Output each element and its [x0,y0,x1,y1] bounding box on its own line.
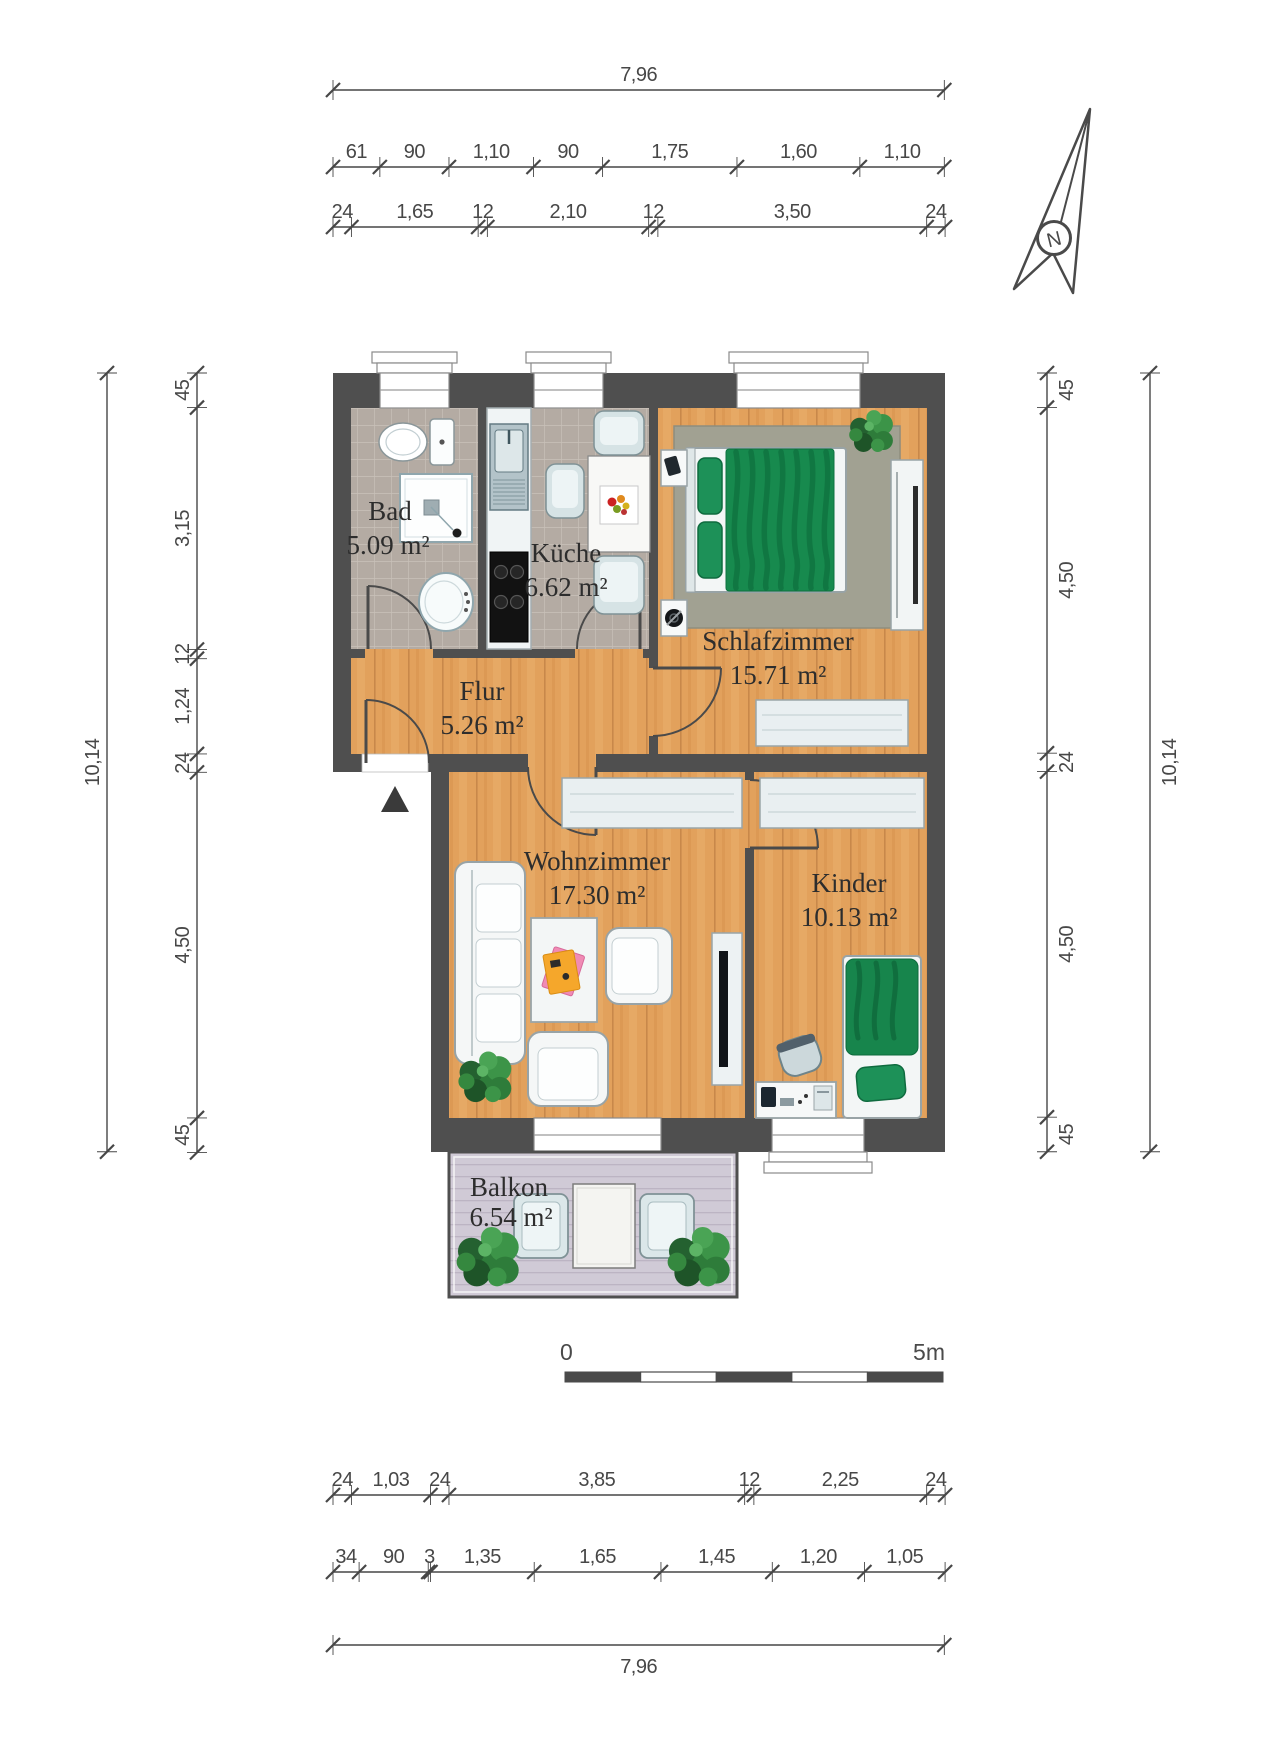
scale-start-label: 0 [560,1339,573,1365]
dim-label: 7,96 [620,64,657,86]
sideboard [562,778,742,828]
dim-label: 24 [925,201,947,223]
cooktop [490,552,528,642]
entrance-arrow-icon [381,786,409,812]
dim-label: 1,60 [780,141,817,163]
double-bed [686,448,846,592]
apartment [333,352,945,1173]
dim-label: 24 [332,1469,354,1491]
room-area-kinder: 10.13 m² [801,902,898,932]
dim-label: 1,05 [886,1546,923,1568]
dim-label: 45 [172,1124,194,1146]
dim-label: 1,10 [473,141,510,163]
dim-label: 34 [335,1546,357,1568]
scale-bar: 0 5m [560,1339,945,1382]
dim-label: 4,50 [172,926,194,963]
room-area-bad: 5.09 m² [346,530,429,560]
scale-end-label: 5m [913,1339,945,1365]
dim-label: 4,50 [1056,926,1078,963]
dim-label: 90 [383,1546,405,1568]
dim-label: 3,85 [578,1469,615,1491]
room-label-kinder: Kinder [812,868,887,898]
dim-label: 12 [172,643,194,665]
dim-label: 12 [472,201,494,223]
dim-chain-left-rooms: 453,15121,24244,5045 [172,366,207,1160]
dim-label: 90 [404,141,426,163]
dim-label: 24 [332,201,354,223]
dim-chain-left-overall: 10,14 [82,366,117,1159]
dim-label: 24 [172,752,194,774]
room-label-schlafzimmer: Schlafzimmer [702,626,853,656]
dim-label: 45 [1056,379,1078,401]
dim-label: 1,10 [884,141,921,163]
tv-board [712,933,742,1085]
balcony-table [573,1184,635,1268]
room-area-wohnzimmer: 17.30 m² [549,880,646,910]
dim-chain-top-overall: 7,96 [326,64,951,100]
desk [756,1082,836,1118]
nightstand [661,450,687,486]
dim-label: 1,03 [373,1469,410,1491]
nightstand [661,600,687,636]
dim-label: 24 [429,1469,451,1491]
dim-chain-bottom-walls: 241,03243,85122,2524 [326,1469,952,1505]
room-area-schlafzimmer: 15.71 m² [730,660,827,690]
kids-bed [843,956,921,1118]
kitchen-sink [490,424,528,510]
dim-label: 45 [172,379,194,401]
dim-label: 10,14 [82,738,104,786]
dim-label: 3,50 [774,201,811,223]
dim-label: 1,75 [651,141,688,163]
dim-label: 4,50 [1056,562,1078,599]
coffee-table [531,918,597,1022]
dim-label: 1,65 [396,201,433,223]
dim-label: 12 [643,201,665,223]
dim-label: 61 [346,141,368,163]
dim-label: 24 [925,1469,947,1491]
sofa [455,862,525,1064]
dim-label: 1,24 [172,687,194,724]
dim-label: 1,65 [579,1546,616,1568]
dim-chain-right-overall: 10,14 [1140,366,1181,1159]
dim-label: 90 [557,141,579,163]
room-area-balkon: 6.54 m² [469,1202,552,1232]
dim-chain-top-walls: 241,65122,10123,5024 [326,201,952,237]
room-area-kueche: 6.62 m² [524,572,607,602]
toilet [379,419,454,465]
dim-chain-bottom-overall: 7,96 [326,1635,951,1678]
dim-label: 3,15 [172,510,194,547]
room-label-flur: Flur [459,676,504,706]
wardrobe [891,460,923,630]
dim-label: 45 [1056,1123,1078,1145]
dim-chain-bottom-openings: 349031,351,651,451,201,05 [326,1546,952,1582]
dim-chain-right-rooms: 454,50244,5045 [1037,366,1078,1159]
bathroom-sink [419,573,473,631]
dim-label: 24 [1056,751,1078,773]
armchair [528,1032,608,1106]
room-label-bad: Bad [368,496,412,526]
dim-chain-top-openings: 61901,10901,751,601,10 [326,141,951,177]
dim-label: 3 [424,1546,435,1568]
dim-label: 2,25 [822,1469,859,1491]
dim-label: 10,14 [1159,738,1181,786]
armchair [606,928,672,1004]
dim-label: 1,35 [464,1546,501,1568]
sideboard [756,700,908,746]
dim-label: 7,96 [620,1656,657,1678]
dim-label: 2,10 [550,201,587,223]
room-label-wohnzimmer: Wohnzimmer [524,846,670,876]
dim-label: 1,20 [800,1546,837,1568]
room-label-balkon: Balkon [470,1172,548,1202]
entrance-opening [362,754,428,772]
sideboard [760,778,924,828]
room-label-kueche: Küche [531,538,601,568]
floor-plan: 7,9661901,10901,751,601,10241,65122,1012… [0,0,1280,1737]
north-arrow: N [1014,109,1090,293]
dim-label: 12 [739,1469,761,1491]
room-area-flur: 5.26 m² [440,710,523,740]
dim-label: 1,45 [698,1546,735,1568]
